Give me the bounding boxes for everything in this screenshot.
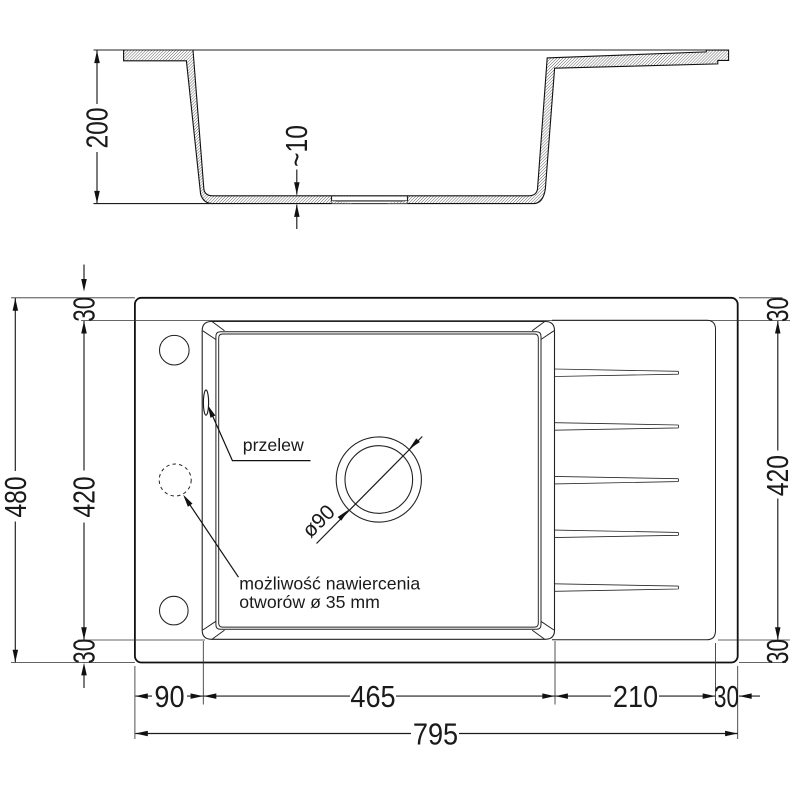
svg-text:30: 30 bbox=[67, 297, 101, 322]
svg-text:210: 210 bbox=[613, 681, 658, 715]
svg-text:795: 795 bbox=[413, 718, 458, 752]
svg-text:480: 480 bbox=[0, 476, 32, 517]
svg-text:420: 420 bbox=[761, 455, 795, 496]
svg-text:otworów ø 35 mm: otworów ø 35 mm bbox=[239, 592, 380, 612]
svg-text:30: 30 bbox=[761, 639, 795, 664]
svg-text:30: 30 bbox=[67, 639, 101, 664]
svg-text:90: 90 bbox=[154, 681, 184, 715]
svg-text:200: 200 bbox=[80, 107, 114, 148]
svg-text:~10: ~10 bbox=[279, 125, 313, 167]
svg-text:przelew: przelew bbox=[243, 435, 304, 455]
svg-text:30: 30 bbox=[714, 680, 739, 714]
svg-text:30: 30 bbox=[761, 297, 795, 322]
svg-text:możliwość nawiercenia: możliwość nawiercenia bbox=[239, 574, 420, 594]
svg-text:465: 465 bbox=[350, 681, 395, 715]
svg-text:420: 420 bbox=[67, 476, 101, 517]
